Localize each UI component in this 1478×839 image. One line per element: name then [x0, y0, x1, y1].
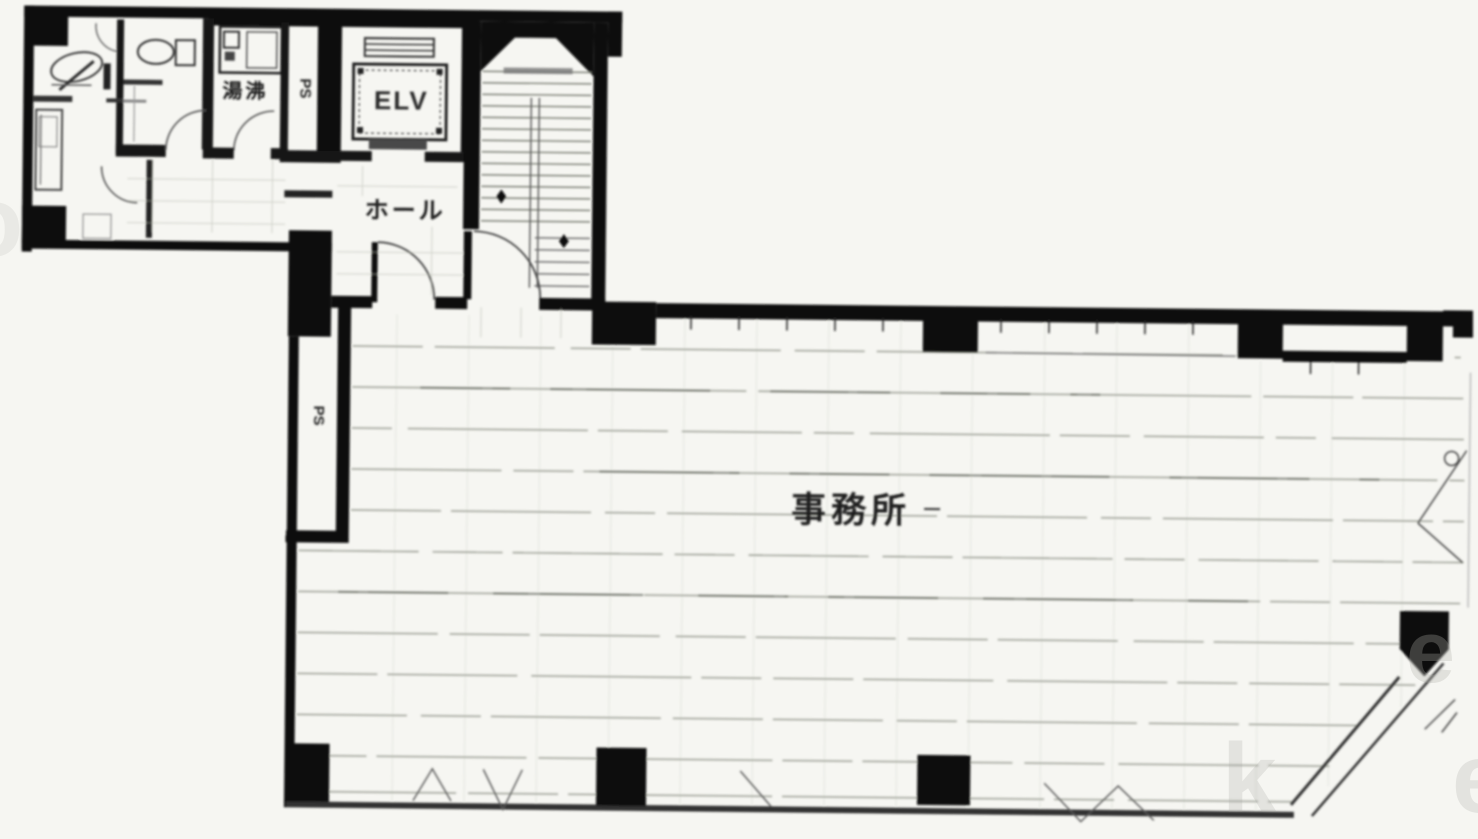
svg-text:o: o	[0, 166, 23, 278]
svg-text:k: k	[1222, 723, 1277, 833]
svg-text:湯沸: 湯沸	[222, 79, 268, 103]
svg-text:PS: PS	[310, 406, 327, 426]
svg-text:e: e	[1452, 723, 1478, 833]
svg-text:ELV: ELV	[374, 85, 429, 116]
svg-text:ホール: ホール	[365, 197, 446, 225]
svg-text:事務所: 事務所	[791, 491, 911, 531]
svg-text:PS: PS	[296, 78, 313, 98]
svg-text:e: e	[1406, 602, 1455, 701]
